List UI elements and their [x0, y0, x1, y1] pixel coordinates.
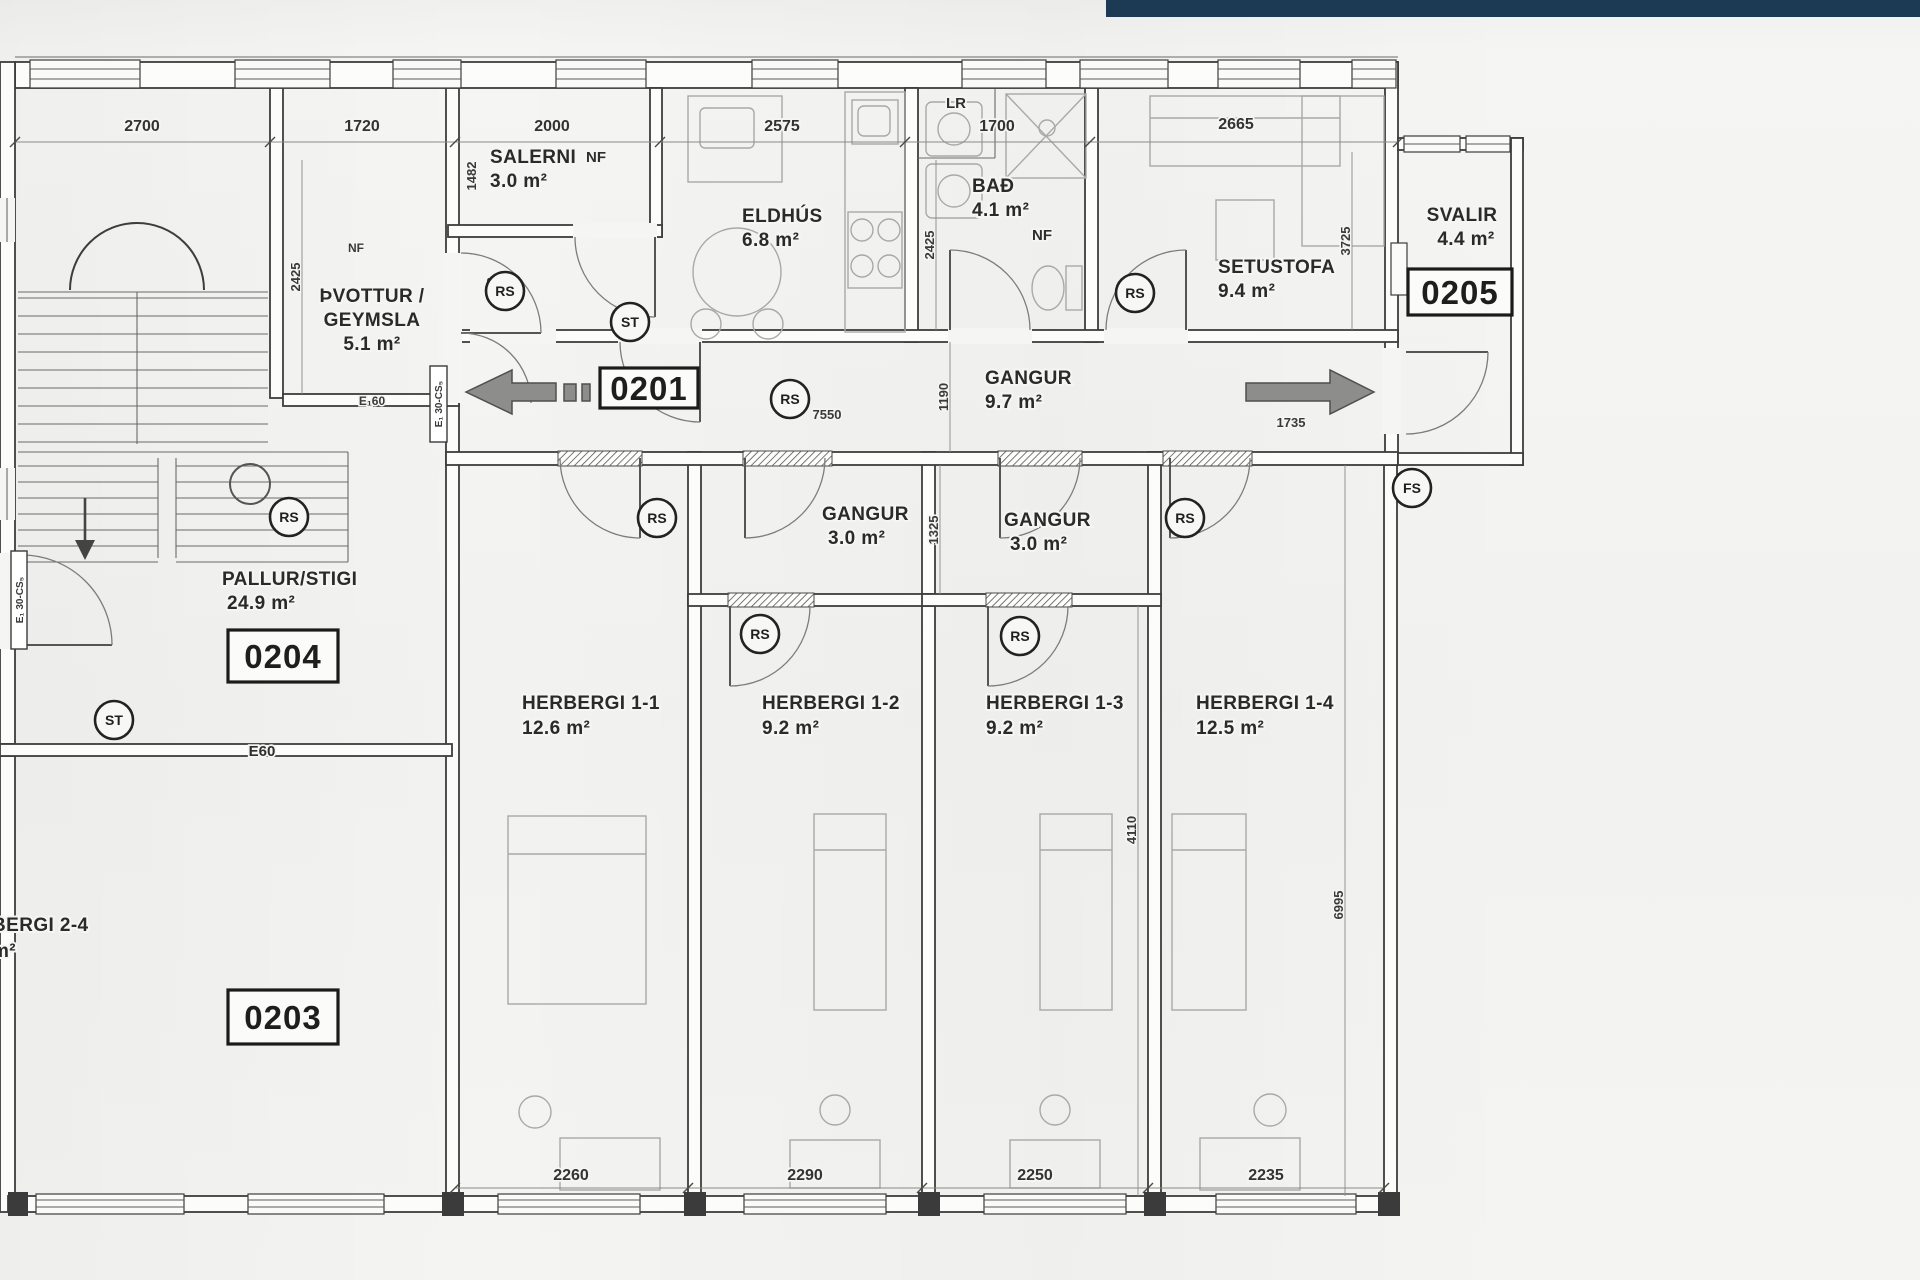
tag-nf-thvottur: NF — [348, 241, 364, 255]
dim-7550: 7550 — [813, 407, 842, 422]
unit-box-0201: 0201 — [600, 368, 698, 408]
room-label-bad: BAÐ — [972, 176, 1014, 197]
area-label-eldhus: 6.8 m² — [742, 230, 799, 251]
area-label-svalir: 4.4 m² — [1437, 229, 1494, 250]
dim-3725: 3725 — [1338, 227, 1353, 256]
room-label-thvottur-1: ÞVOTTUR / — [320, 286, 425, 307]
unit-number-0201: 0201 — [610, 370, 687, 407]
bedroom-1-3-furniture — [1010, 814, 1112, 1188]
room-label-setustofa: SETUSTOFA — [1218, 257, 1335, 278]
marker-rs-8: RS — [1166, 499, 1204, 537]
exit-arrow-left-icon — [466, 370, 590, 414]
room-label-eldhus: ELDHÚS — [742, 205, 823, 227]
dim-2575: 2575 — [764, 118, 800, 135]
room-label-h14: HERBERGI 1-4 — [1196, 693, 1334, 714]
svg-text:RS: RS — [1010, 628, 1029, 644]
dim-2425-right: 2425 — [922, 231, 937, 260]
area-label-h14: 12.5 m² — [1196, 718, 1264, 739]
area-label-thvottur: 5.1 m² — [343, 334, 400, 355]
svg-text:ST: ST — [105, 712, 123, 728]
area-label-bad: 4.1 m² — [972, 200, 1029, 221]
scanned-floorplan-page: E₁ 30-CS₅ E₁ 30-CS₅ — [0, 0, 1920, 1280]
room-label-h24: BERGI 2-4 — [0, 915, 89, 936]
marker-st-1: ST — [611, 303, 649, 341]
unit-box-0203: 0203 — [228, 990, 338, 1044]
marker-fs-1: FS — [1393, 469, 1431, 507]
svg-text:RS: RS — [750, 626, 769, 642]
door-salerni — [575, 237, 655, 317]
svg-text:RS: RS — [495, 283, 514, 299]
area-label-gangur-3: 3.0 m² — [1010, 534, 1067, 555]
unit-number-0204: 0204 — [244, 638, 321, 675]
room-label-gangur-3: GANGUR — [1004, 510, 1091, 531]
door-herbergi-1-1 — [560, 458, 640, 538]
room-label-salerni: SALERNI — [490, 147, 576, 168]
unit-number-0205: 0205 — [1421, 274, 1498, 311]
marker-rs-7: RS — [1001, 617, 1039, 655]
fire-tag-left-label: E₁ 30-CS₅ — [15, 576, 26, 623]
dim-2700: 2700 — [124, 118, 160, 135]
area-label-salerni: 3.0 m² — [490, 171, 547, 192]
marker-rs-6: RS — [741, 615, 779, 653]
dim-4110: 4110 — [1124, 816, 1139, 844]
tag-nf-salerni: NF — [586, 149, 606, 166]
dim-1720: 1720 — [344, 118, 380, 135]
room-label-gangur-main: GANGUR — [985, 368, 1072, 389]
unit-box-0205: 0205 — [1408, 269, 1512, 315]
dim-1700: 1700 — [979, 118, 1015, 135]
exit-arrow-right-icon — [1246, 370, 1374, 414]
svg-text:RS: RS — [780, 391, 799, 407]
room-label-h11: HERBERGI 1-1 — [522, 693, 660, 714]
floorplan-svg: E₁ 30-CS₅ E₁ 30-CS₅ — [0, 0, 1920, 1280]
area-label-pallur: 24.9 m² — [227, 593, 295, 614]
svg-text:RS: RS — [279, 509, 298, 525]
bedroom-1-4-furniture — [1172, 814, 1300, 1190]
area-label-gangur-2: 3.0 m² — [828, 528, 885, 549]
dim-1325: 1325 — [926, 516, 941, 545]
svg-text:RS: RS — [1175, 510, 1194, 526]
dim-1482: 1482 — [464, 162, 479, 191]
marker-rs-3: RS — [1116, 274, 1154, 312]
dim-2665: 2665 — [1218, 116, 1254, 133]
dim-2425-left: 2425 — [288, 263, 303, 292]
unit-number-0203: 0203 — [244, 999, 321, 1036]
room-label-svalir: SVALIR — [1427, 205, 1498, 226]
area-label-setustofa: 9.4 m² — [1218, 281, 1275, 302]
tag-nf-bad: NF — [1032, 227, 1052, 244]
marker-rs-2: RS — [771, 380, 809, 418]
dim-2260: 2260 — [553, 1167, 589, 1184]
svg-text:FS: FS — [1403, 480, 1421, 496]
bedroom-1-2-furniture — [790, 814, 886, 1188]
bedroom-1-1-furniture — [508, 816, 660, 1190]
door-vestibule-1-2 — [745, 458, 825, 538]
unit-box-0204: 0204 — [228, 630, 338, 682]
tag-e60: E60 — [249, 743, 276, 760]
area-label-h13: 9.2 m² — [986, 718, 1043, 739]
dim-2250: 2250 — [1017, 1167, 1053, 1184]
marker-st-2: ST — [95, 701, 133, 739]
door-bad — [950, 250, 1030, 330]
room-label-thvottur-2: GEYMSLA — [324, 310, 421, 331]
fire-tag-corridor-label: E₁ 30-CS₅ — [434, 380, 445, 427]
room-label-h12: HERBERGI 1-2 — [762, 693, 900, 714]
marker-rs-4: RS — [270, 498, 308, 536]
tag-lr: LR — [946, 95, 966, 112]
area-label-gangur-main: 9.7 m² — [985, 392, 1042, 413]
room-label-h13: HERBERGI 1-3 — [986, 693, 1124, 714]
svg-text:ST: ST — [621, 314, 639, 330]
dim-2000: 2000 — [534, 118, 570, 135]
dim-6995: 6995 — [1331, 891, 1346, 920]
svg-text:RS: RS — [647, 510, 666, 526]
dim-2235: 2235 — [1248, 1167, 1284, 1184]
area-label-h24: m² — [0, 941, 16, 962]
svg-text:RS: RS — [1125, 285, 1144, 301]
area-label-h11: 12.6 m² — [522, 718, 590, 739]
room-label-pallur: PALLUR/STIGI — [222, 569, 357, 590]
room-label-gangur-2: GANGUR — [822, 504, 909, 525]
area-label-h12: 9.2 m² — [762, 718, 819, 739]
door-svalir — [1406, 352, 1488, 434]
tag-e160: E₁60 — [359, 394, 386, 408]
dim-1190: 1190 — [936, 383, 951, 411]
dim-2290: 2290 — [787, 1167, 823, 1184]
dim-1735: 1735 — [1277, 415, 1306, 430]
dimension-lines — [10, 137, 1403, 1196]
door-0203-left — [22, 555, 112, 645]
stair-down-arrow-icon — [75, 498, 95, 560]
marker-rs-5: RS — [638, 499, 676, 537]
fire-tag-left-wall: E₁ 30-CS₅ — [11, 551, 27, 649]
fire-tag-corridor: E₁ 30-CS₅ — [430, 366, 447, 442]
marker-rs-1: RS — [486, 272, 524, 310]
